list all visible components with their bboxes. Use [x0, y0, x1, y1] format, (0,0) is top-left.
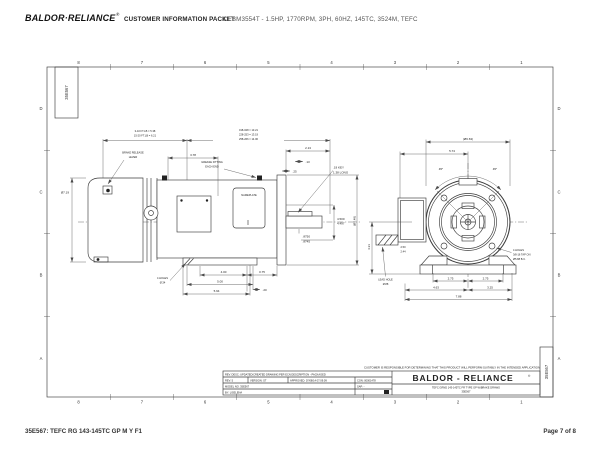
brake-release-note: LEVER — [129, 155, 138, 159]
end-foot-right — [489, 256, 515, 265]
c-face-flange — [277, 175, 286, 265]
angle-dim: 45° — [493, 167, 498, 171]
title-block: CUSTOMER IS RESPONSIBLE FOR DETERMINING … — [223, 366, 540, 396]
grid-row-label: D — [557, 106, 560, 111]
grid-row-label: B — [40, 273, 43, 278]
key-note: .19 KEY — [333, 166, 344, 170]
grid-row-label: D — [39, 106, 42, 111]
base-holes-note: Ø.34 — [160, 281, 166, 285]
shaft-ext-dim: 2.13 — [305, 146, 311, 150]
tap-note: 4 HOLES — [513, 248, 524, 252]
rev-cell: REV: 5 — [225, 378, 234, 382]
grid-col-label: 7 — [141, 60, 144, 65]
od-dim: (Ø6.63) — [463, 137, 473, 141]
end-base-plate — [420, 265, 516, 274]
shaft — [286, 216, 322, 228]
grid-row-label: C — [557, 190, 560, 195]
grid-col-label: 2 — [457, 60, 460, 65]
grid-col-label: 3 — [394, 400, 397, 405]
tap-note: 3/8-16 TAP ON — [513, 253, 531, 257]
grid-col-label: 1 — [520, 400, 523, 405]
foot-offset-dim: 0.75 — [259, 270, 265, 274]
grease-fitting-rear — [257, 176, 262, 181]
fitting-dim: 2.50 — [401, 245, 407, 249]
grid-col-label: 6 — [204, 400, 207, 405]
grid-row-label: B — [558, 273, 561, 278]
edge-dim: .20 — [263, 288, 268, 292]
grid-col-label: 5 — [267, 400, 270, 405]
grid-col-label: 8 — [77, 400, 80, 405]
body-dim: 3.78 — [190, 153, 196, 157]
height-dim: 4.31 — [367, 244, 371, 250]
key-leader — [298, 171, 333, 213]
motor-side-view: NAMEPLATE — [78, 175, 360, 265]
lead-hole-leader — [383, 247, 386, 277]
grid-col-label: 5 — [267, 60, 270, 65]
grease-leader — [224, 169, 256, 178]
footer-drawing-ref: 35E567: TEFC RG 143-145TC GP M Y F1 — [25, 428, 142, 435]
foot-spacing2-dim: 5.00 — [217, 280, 223, 284]
grease-fitting-note: EACH END — [205, 165, 219, 169]
overall-width-dim: 7.88 — [456, 295, 462, 299]
grid-col-label: 6 — [204, 60, 207, 65]
shaft-dia-dim: .8750 — [303, 235, 311, 239]
overall-length-dim: 018-028 = 13.21 — [239, 128, 259, 132]
drawing-title-number: 35E567 — [462, 390, 472, 394]
junction-box-bolt — [180, 199, 182, 201]
shaft-dia-dim: .8745 — [303, 240, 311, 244]
grid-row-label: A — [40, 356, 43, 361]
con-cell: CON: 00001478 — [357, 378, 376, 382]
lifting-lug — [459, 179, 477, 186]
rigid-base-plate — [183, 258, 257, 265]
shaft-key — [288, 212, 312, 217]
drawing-number-vertical: 35E567 — [64, 85, 69, 100]
tap-note: Ø5.88 B.C. — [513, 257, 526, 261]
grid-col-label: 3 — [394, 60, 397, 65]
grid-row-label: A — [558, 356, 561, 361]
base-length-dim: 5.94 — [214, 289, 220, 293]
model-no-cell: MODEL NO. 35E567 — [225, 384, 250, 388]
brand-registered-mark: ® — [528, 374, 531, 378]
base-width-dim: 3.25 — [487, 286, 493, 290]
motor-end-view — [376, 163, 528, 289]
nameplate-label: NAMEPLATE — [241, 193, 257, 197]
drawing-title: TEFC GRND 143-145TC FR TYPE GP W/BRAKE D… — [432, 385, 500, 389]
e-dim: 2.75 — [483, 277, 489, 281]
rev-desc-cell: REV. DESC: UPDATED/CREATED DRAWING PER E… — [225, 372, 326, 376]
fitting-dim: 2.44 — [401, 250, 407, 254]
base-holes-note: 4 HOLES — [157, 276, 168, 280]
brake-release-note: BRAKE RELEASE — [122, 151, 144, 155]
grid-col-label: 7 — [141, 400, 144, 405]
engineering-drawing: 8 7 6 5 4 3 2 1 8 7 6 5 4 3 2 1 D C B A … — [0, 0, 600, 464]
junction-box-bolt — [206, 199, 208, 201]
overall-length-dim: 258-266 = 14.06 — [239, 137, 259, 141]
projection-symbol — [384, 390, 389, 394]
brake-od-dim: Ø7.19 — [61, 191, 70, 195]
grid-col-label: 8 — [77, 60, 80, 65]
document-page: BALDOR·RELIANCE ® CUSTOMER INFORMATION P… — [0, 0, 600, 464]
lever-knob — [106, 189, 110, 193]
lead-hole-note: LEAD HOLE — [378, 278, 393, 282]
responsibility-note: CUSTOMER IS RESPONSIBLE FOR DETERMINING … — [364, 366, 540, 370]
overall-length-dim: 228-253 = 13.19 — [239, 133, 259, 137]
gap-dim: .13 — [306, 160, 311, 164]
grid-row-label: C — [39, 190, 42, 195]
sap-cell: SAP: - — [357, 384, 365, 388]
base-width-dim: 4.63 — [433, 286, 439, 290]
end-foot-left — [421, 256, 447, 265]
brake-length-dim: 15-20 FT.LB = 6.21 — [134, 134, 157, 138]
grease-fitting-front — [162, 176, 167, 181]
gap-dim: .25 — [293, 170, 298, 174]
foot-spacing-dim: 4.00 — [221, 270, 227, 274]
conduit-box — [398, 198, 426, 242]
brake-foot-bolt — [97, 258, 100, 261]
key-note: 1.38 LONG — [333, 171, 349, 175]
flange-od-dim: (Ø6.48) — [353, 216, 357, 226]
e-dim: 2.75 — [448, 277, 454, 281]
grid-col-label: 4 — [330, 400, 333, 405]
width-dim: 5.74 — [449, 149, 455, 153]
rabbet-dia-dim: 4.497 — [337, 222, 345, 226]
version-cell: VERSION: ST — [250, 378, 267, 382]
footer-page-number: Page 7 of 8 — [543, 428, 576, 435]
brake-housing — [88, 178, 143, 262]
grease-fitting-note: GREASE FITTING — [201, 160, 223, 164]
drawing-number-vertical: 35E567 — [544, 364, 549, 379]
angle-dim: 45° — [439, 167, 444, 171]
grid-col-label: 4 — [330, 60, 333, 65]
lead-hole-note: Ø.88 — [383, 282, 389, 286]
grid-col-label: 1 — [520, 60, 523, 65]
title-block-brand: BALDOR - RELIANCE — [413, 373, 514, 383]
grid-col-label: 2 — [457, 400, 460, 405]
rabbet-dia-dim: 4.500 — [337, 217, 345, 221]
approved-cell: APPROVED: 07/08/14 07:09:09 — [290, 378, 327, 382]
brake-hub — [144, 206, 158, 220]
brake-length-dim: 3-10 FT.LB = 5.38 — [135, 129, 156, 133]
by-cell: BY: LISELENA — [225, 390, 242, 394]
